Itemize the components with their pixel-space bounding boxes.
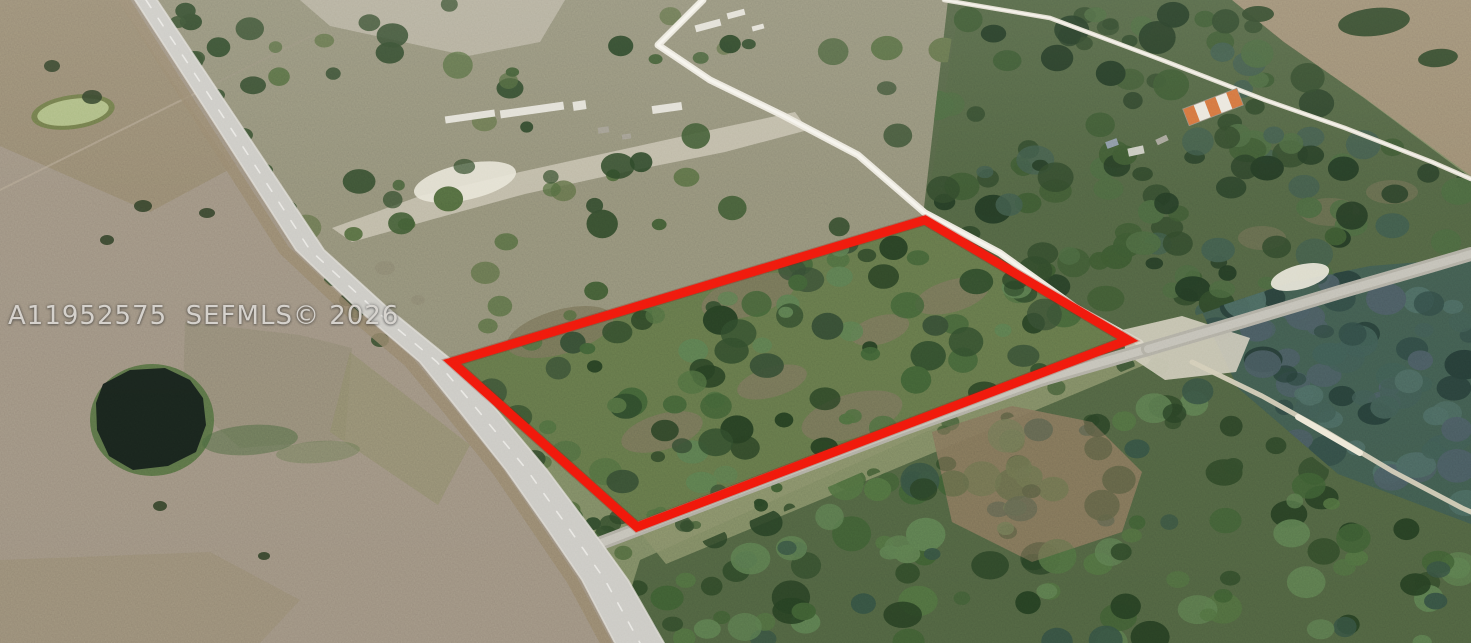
listing-aerial-photo: A11952575 SEFMLS© 2026 [0, 0, 1471, 643]
atmospheric-haze-overlay [0, 0, 1471, 643]
satellite-map-canvas [0, 0, 1471, 643]
